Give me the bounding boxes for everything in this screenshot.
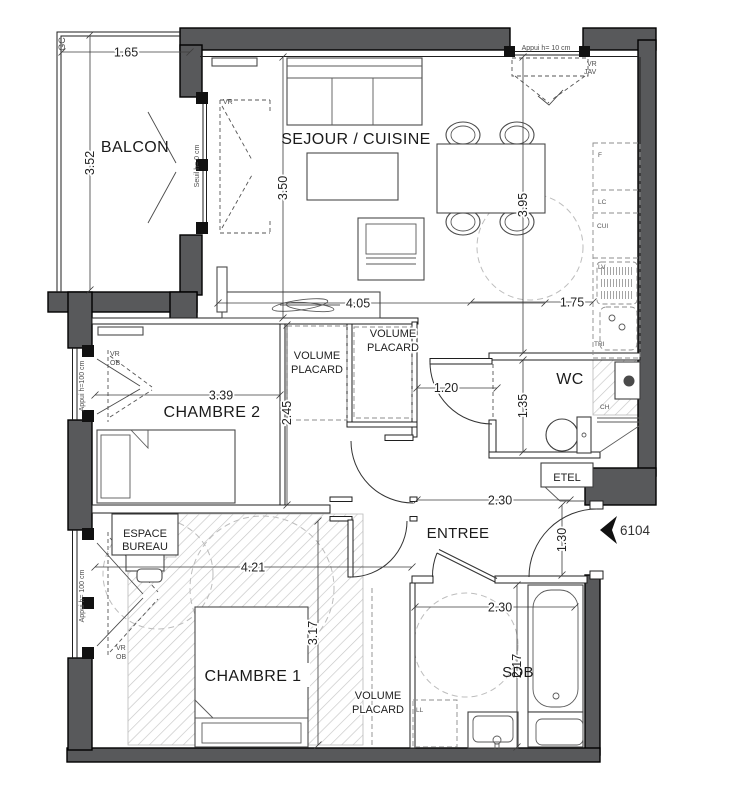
note-appui-100-ch2: Appui h=100 cm xyxy=(79,360,86,411)
placard-entree xyxy=(354,327,412,418)
furniture-sejour xyxy=(212,58,545,318)
dim-entree-depth: 1.30 xyxy=(555,528,569,552)
dishwasher-rib-2 xyxy=(601,279,634,287)
label-entree: ENTREE xyxy=(427,525,490,542)
note-kitchen-lv: LV xyxy=(598,264,606,271)
wall-etel-corner xyxy=(585,468,656,505)
dim-wc-depth: 1.35 xyxy=(516,394,530,418)
sdb-washbasin xyxy=(468,712,518,750)
toilet xyxy=(546,417,591,453)
wall-right xyxy=(638,40,656,476)
note-ob-ch1: OB xyxy=(116,654,126,661)
wall-left-b xyxy=(68,420,92,530)
sejour-top-window xyxy=(504,46,590,105)
etel-label: ETEL xyxy=(553,472,581,484)
label-placard-ch1-2: PLACARD xyxy=(352,704,404,716)
note-vr-ch2: VR xyxy=(110,351,120,358)
wc-washbasin xyxy=(615,362,640,399)
dishwasher-rib-1 xyxy=(601,267,634,275)
label-chambre2: CHAMBRE 2 xyxy=(164,404,261,421)
label-placard-ch1-1: VOLUME xyxy=(355,690,401,702)
dim-chambre1-width: 4.21 xyxy=(241,561,265,575)
dim-sejour-width: 4.05 xyxy=(346,297,370,311)
dim-chambre2-width: 3.39 xyxy=(209,389,233,403)
note-kitchen-lc: LC xyxy=(598,199,607,206)
note-kitchen-tri: TRI xyxy=(594,341,605,348)
wall-facade-lower xyxy=(180,235,202,295)
wall-top-main xyxy=(180,28,510,50)
dim-entree-width: 2.30 xyxy=(488,494,512,508)
wall-ch1-corridor-e xyxy=(410,517,417,522)
dim-chambre2-depth: 2.45 xyxy=(280,401,294,425)
note-kitchen-f: F xyxy=(598,152,602,159)
label-espace-bureau-2: BUREAU xyxy=(122,541,168,553)
tv-unit xyxy=(217,267,227,312)
armchair xyxy=(358,218,424,280)
lot-marker: 6104 xyxy=(600,516,651,544)
note-kitchen-cui: CUI xyxy=(597,223,608,230)
sofa xyxy=(287,58,422,125)
desk-chair xyxy=(137,569,162,582)
chambre2-door xyxy=(351,435,413,503)
dim-balcon-width: 1.65 xyxy=(114,46,138,60)
dim-cuisine-depth: 3.95 xyxy=(516,193,530,217)
radiator-sejour xyxy=(212,58,257,66)
note-ll: LL xyxy=(416,707,424,714)
bathtub xyxy=(528,585,583,747)
wall-wc-north xyxy=(489,353,640,360)
wall-chambre2-north xyxy=(92,318,418,324)
label-sdb: SDB xyxy=(502,664,534,681)
wall-sdb-north-w xyxy=(412,576,433,583)
dim-chambre1-depth: 3.17 xyxy=(306,621,320,645)
bed-chambre2 xyxy=(97,430,235,503)
label-placard-entree-1: VOLUME xyxy=(370,328,416,340)
label-chambre1: CHAMBRE 1 xyxy=(205,668,302,685)
wall-placard-mid xyxy=(347,324,352,427)
kitchen-sink xyxy=(600,307,637,350)
dim-sdb-width: 2.30 xyxy=(488,601,512,615)
label-balcon: BALCON xyxy=(101,139,169,156)
wall-wc-west xyxy=(489,420,496,457)
label-espace-bureau-1: ESPACE xyxy=(123,528,167,540)
wall-bottom xyxy=(67,748,600,762)
note-appui-10: Appui h= 10 cm xyxy=(522,45,571,52)
wall-ch2-corridor xyxy=(330,497,352,502)
note-seuil-0: Seuil h= 0 cm xyxy=(194,145,201,188)
floor-plan-page: ETEL 6104 1.65 3.52 3.50 3.95 4.05 1.75 … xyxy=(0,0,733,800)
label-placard-entree-2: PLACARD xyxy=(367,342,419,354)
wall-facade-upper xyxy=(180,45,202,97)
wall-sdb-north-e xyxy=(495,576,587,583)
balcony-door-window xyxy=(148,92,270,234)
note-ob-ch2: OB xyxy=(110,360,120,367)
lot-arrow-icon xyxy=(600,516,617,544)
kitchen-appliance-strip xyxy=(593,143,640,358)
dim-balcon-depth: 3.52 xyxy=(83,151,97,175)
dishwasher-rib-3 xyxy=(601,291,634,299)
sdb-door xyxy=(432,550,497,583)
dim-sejour-depth: 3.50 xyxy=(276,176,290,200)
note-ch: CH xyxy=(600,404,610,411)
wall-left-a xyxy=(68,292,92,348)
label-placard-ch2-1: VOLUME xyxy=(294,350,340,362)
floor-plan-drawing: ETEL 6104 1.65 3.52 3.50 3.95 4.05 1.75 … xyxy=(0,0,733,800)
note-gc: GC xyxy=(57,37,67,51)
label-placard-ch2-2: PLACARD xyxy=(291,364,343,376)
coffee-table xyxy=(307,153,398,200)
wall-right-lower xyxy=(585,575,600,755)
dim-wc-width: 1.20 xyxy=(434,381,458,395)
label-wc: WC xyxy=(556,371,583,388)
note-vr-balcon: VR xyxy=(223,99,233,106)
wall-placard-south xyxy=(347,422,417,427)
note-vr-ch1: VR xyxy=(116,645,126,652)
wall-ch2-ch1 xyxy=(92,505,330,513)
wall-left-c xyxy=(68,658,92,750)
label-sejour-cuisine: SEJOUR / CUISINE xyxy=(281,131,431,148)
radiator-chambre2 xyxy=(98,327,143,335)
note-appui-100-ch1: Appui h= 100 cm xyxy=(79,569,86,622)
dim-cuisine-width: 1.75 xyxy=(560,296,584,310)
lot-number: 6104 xyxy=(620,523,651,538)
note-vr-sejour: VR xyxy=(587,61,597,68)
note-jav-sejour: JAV xyxy=(584,69,597,76)
